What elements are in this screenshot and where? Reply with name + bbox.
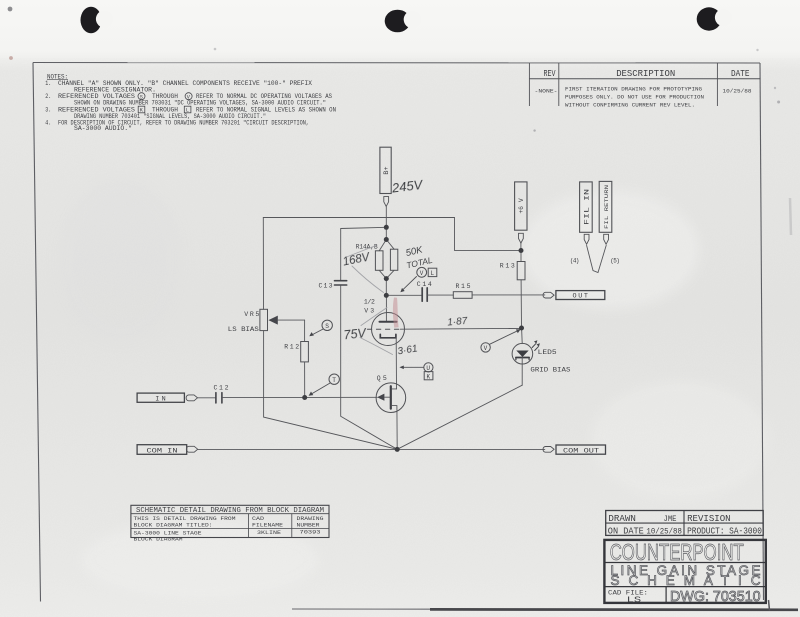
svg-text:U: U	[426, 365, 430, 372]
svg-text:GRID BIAS: GRID BIAS	[530, 366, 570, 373]
svg-text:DWG: 703510: DWG: 703510	[670, 588, 761, 605]
svg-text:FILENAME: FILENAME	[252, 522, 284, 529]
svg-text:REV: REV	[544, 69, 556, 79]
svg-text:SCHEMATIC DETAIL DRAWING FROM: SCHEMATIC DETAIL DRAWING FROM BLOCK DIAG…	[136, 507, 324, 515]
svg-text:3KLINE: 3KLINE	[257, 529, 282, 536]
svg-text:1.: 1.	[45, 80, 51, 87]
svg-text:JME: JME	[664, 514, 677, 524]
svg-text:COUNTERPOINT: COUNTERPOINT	[610, 539, 744, 565]
svg-text:(5): (5)	[610, 258, 620, 265]
svg-text:R15: R15	[456, 283, 471, 290]
svg-text:SA-3000 AUDIO.": SA-3000 AUDIO."	[74, 125, 132, 132]
svg-text:3.: 3.	[45, 106, 51, 113]
svg-text:FIRST ITERATION DRAWING FOR PR: FIRST ITERATION DRAWING FOR PROTOTYPING	[565, 86, 703, 93]
svg-text:(4): (4)	[570, 258, 580, 265]
svg-text:70393: 70393	[300, 528, 321, 535]
svg-text:K: K	[427, 373, 431, 380]
svg-text:-NONE-: -NONE-	[535, 88, 558, 95]
svg-text:4.: 4.	[45, 119, 51, 126]
svg-text:B+: B+	[383, 166, 391, 174]
svg-text:ON DATE: ON DATE	[608, 525, 644, 536]
svg-text:R14A,B: R14A,B	[356, 244, 378, 251]
svg-text:V: V	[484, 345, 488, 352]
svg-text:10/25/88: 10/25/88	[723, 87, 753, 94]
svg-text:WITHOUT CONFIRMING CURRENT REV: WITHOUT CONFIRMING CURRENT REV LEVEL.	[565, 101, 695, 108]
svg-text:COM IN: COM IN	[147, 447, 178, 455]
svg-text:R12: R12	[284, 343, 299, 350]
svg-text:1·87: 1·87	[447, 316, 468, 329]
svg-text:PURPOSES ONLY. DO NOT USE FOR: PURPOSES ONLY. DO NOT USE FOR PRODUCTION	[565, 94, 705, 101]
svg-text:LS: LS	[627, 595, 642, 605]
svg-text:C12: C12	[214, 384, 229, 391]
svg-text:FIL IN: FIL IN	[583, 188, 590, 225]
svg-text:R13: R13	[500, 262, 515, 269]
svg-text:BLOCK DIAGRAM TITLED:: BLOCK DIAGRAM TITLED:	[134, 522, 213, 529]
svg-text:DATE: DATE	[731, 69, 750, 79]
svg-text:LED5: LED5	[538, 349, 557, 356]
svg-text:10/25/88: 10/25/88	[646, 526, 682, 536]
svg-text:LS BIAS: LS BIAS	[228, 326, 259, 333]
svg-text:BLOCK DIAGRAM: BLOCK DIAGRAM	[134, 536, 183, 543]
svg-text:DESCRIPTION: DESCRIPTION	[616, 69, 675, 79]
svg-text:SCHEMATIC: SCHEMATIC	[611, 573, 761, 588]
svg-text:L: L	[431, 270, 435, 277]
svg-text:FIL RETURN: FIL RETURN	[603, 185, 610, 229]
svg-text:T: T	[332, 377, 336, 384]
svg-text:1/2: 1/2	[364, 299, 375, 306]
svg-text:S: S	[325, 323, 329, 330]
svg-text:C13: C13	[319, 283, 333, 290]
svg-text:DRAWN: DRAWN	[608, 513, 636, 524]
svg-text:REVISION: REVISION	[687, 513, 731, 524]
svg-text:2.: 2.	[45, 93, 51, 100]
svg-text:V: V	[420, 270, 424, 277]
svg-text:+6 V: +6 V	[518, 198, 525, 214]
svg-text:C14: C14	[417, 281, 432, 288]
svg-text:OUT: OUT	[573, 293, 589, 301]
svg-text:COM OUT: COM OUT	[563, 447, 599, 455]
svg-text:PRODUCT: SA-3000: PRODUCT: SA-3000	[687, 525, 762, 536]
svg-text:VR5: VR5	[244, 311, 259, 318]
